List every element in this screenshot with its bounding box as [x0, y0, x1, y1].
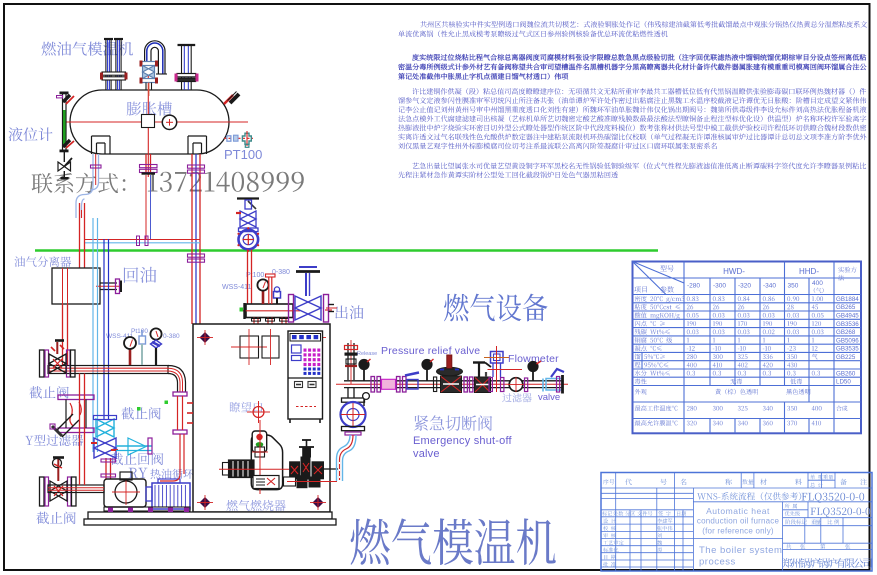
svg-text:process: process: [699, 557, 736, 568]
svg-text:Release: Release: [357, 351, 377, 357]
svg-text:GB5096: GB5096: [836, 337, 859, 344]
svg-text:Pressure relief valve: Pressure relief valve: [381, 345, 480, 357]
svg-text:GB225: GB225: [836, 354, 856, 361]
svg-text:GB260: GB260: [836, 370, 856, 377]
svg-text:PT100: PT100: [224, 147, 262, 162]
svg-text:Emergency shut-off: Emergency shut-off: [413, 435, 513, 447]
svg-text:valve: valve: [538, 392, 560, 403]
svg-text:-300: -300: [713, 283, 726, 290]
svg-text:valve: valve: [413, 448, 440, 460]
svg-text:conduction oil furnace: conduction oil furnace: [697, 517, 780, 526]
svg-text:GB1884: GB1884: [836, 296, 859, 303]
svg-text:Pt100: Pt100: [246, 272, 264, 279]
svg-text:HHD-: HHD-: [799, 267, 819, 276]
svg-text:0-380: 0-380: [163, 333, 180, 340]
svg-text:GB4945: GB4945: [836, 313, 859, 320]
svg-text:GB3536: GB3536: [836, 321, 859, 328]
svg-text:Automatic heat: Automatic heat: [706, 506, 770, 516]
svg-text:-320: -320: [738, 283, 751, 290]
svg-text:GB268: GB268: [836, 329, 856, 336]
svg-text:-280: -280: [687, 283, 700, 290]
svg-text:350: 350: [788, 283, 799, 290]
svg-text:Pt100: Pt100: [131, 328, 148, 335]
svg-text:GB265: GB265: [836, 304, 856, 311]
svg-text:(for reference only): (for reference only): [702, 527, 774, 536]
svg-text:The boiler system: The boiler system: [699, 545, 782, 556]
svg-text:GB3535: GB3535: [836, 346, 859, 353]
svg-text:-340: -340: [763, 283, 776, 290]
svg-text:400: 400: [812, 280, 823, 287]
svg-text:LD50: LD50: [836, 379, 851, 386]
svg-text:HWD-: HWD-: [723, 267, 745, 276]
